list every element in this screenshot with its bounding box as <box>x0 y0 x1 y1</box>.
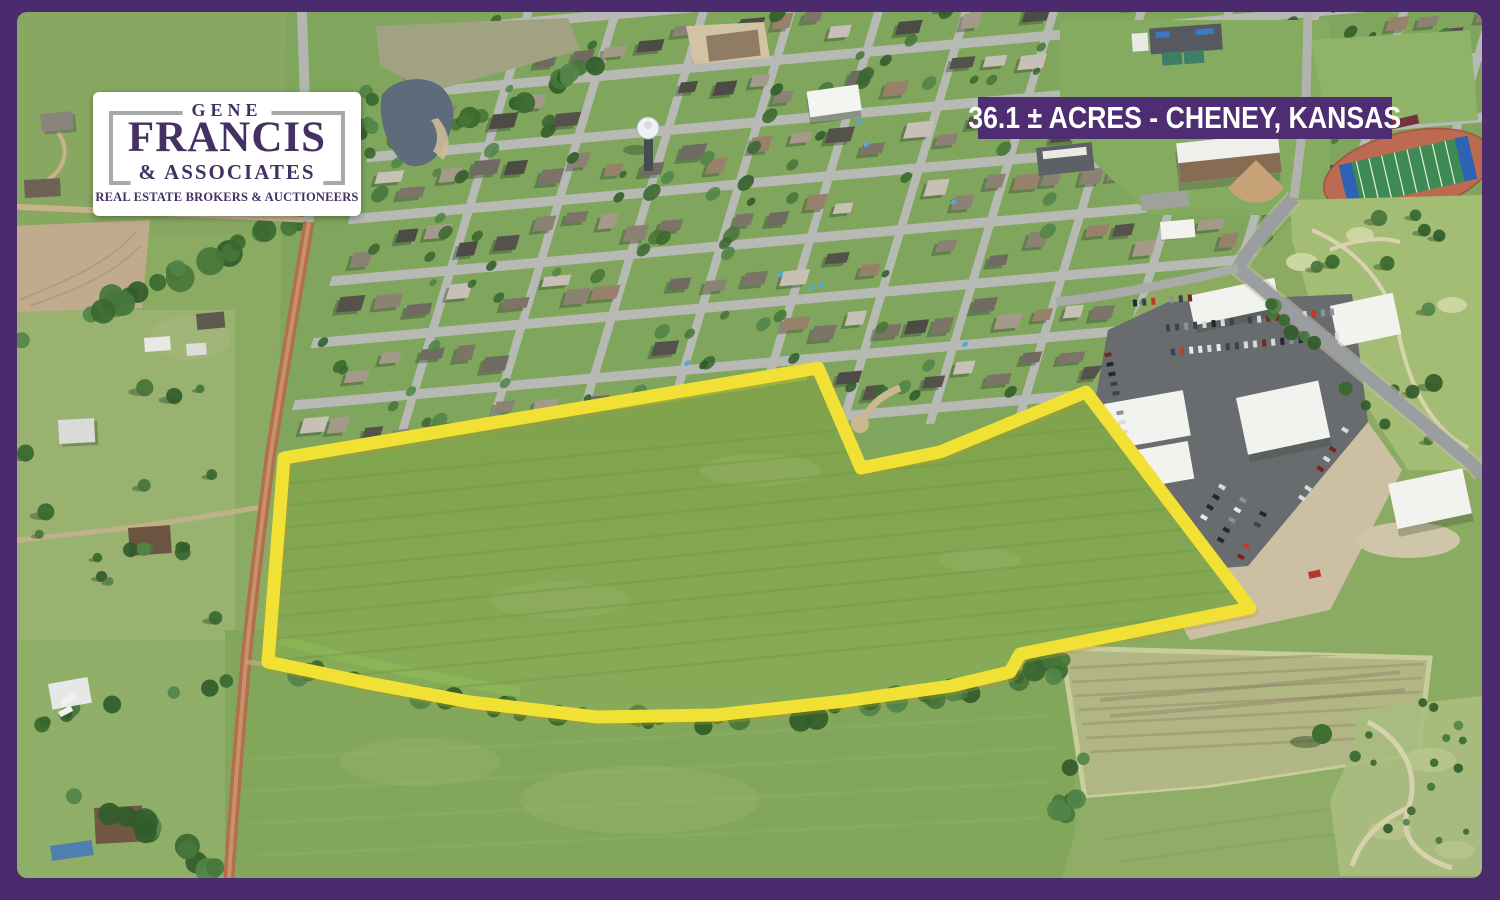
nursing-home <box>1036 142 1095 176</box>
logo-tagline: REAL ESTATE BROKERS & AUCTIONEERS <box>93 190 361 205</box>
real-estate-flyer: GENE FRANCIS & ASSOCIATES REAL ESTATE BR… <box>0 0 1500 900</box>
acreage-banner-label: 36.1 ± ACRES - CHENEY, KANSAS <box>969 100 1402 136</box>
acreage-banner: 36.1 ± ACRES - CHENEY, KANSAS <box>978 97 1392 139</box>
logo-line-associates: & ASSOCIATES <box>130 160 323 185</box>
construction-lot <box>686 22 770 64</box>
logo-line-francis: FRANCIS <box>93 113 361 162</box>
brand-logo: GENE FRANCIS & ASSOCIATES REAL ESTATE BR… <box>93 92 361 216</box>
